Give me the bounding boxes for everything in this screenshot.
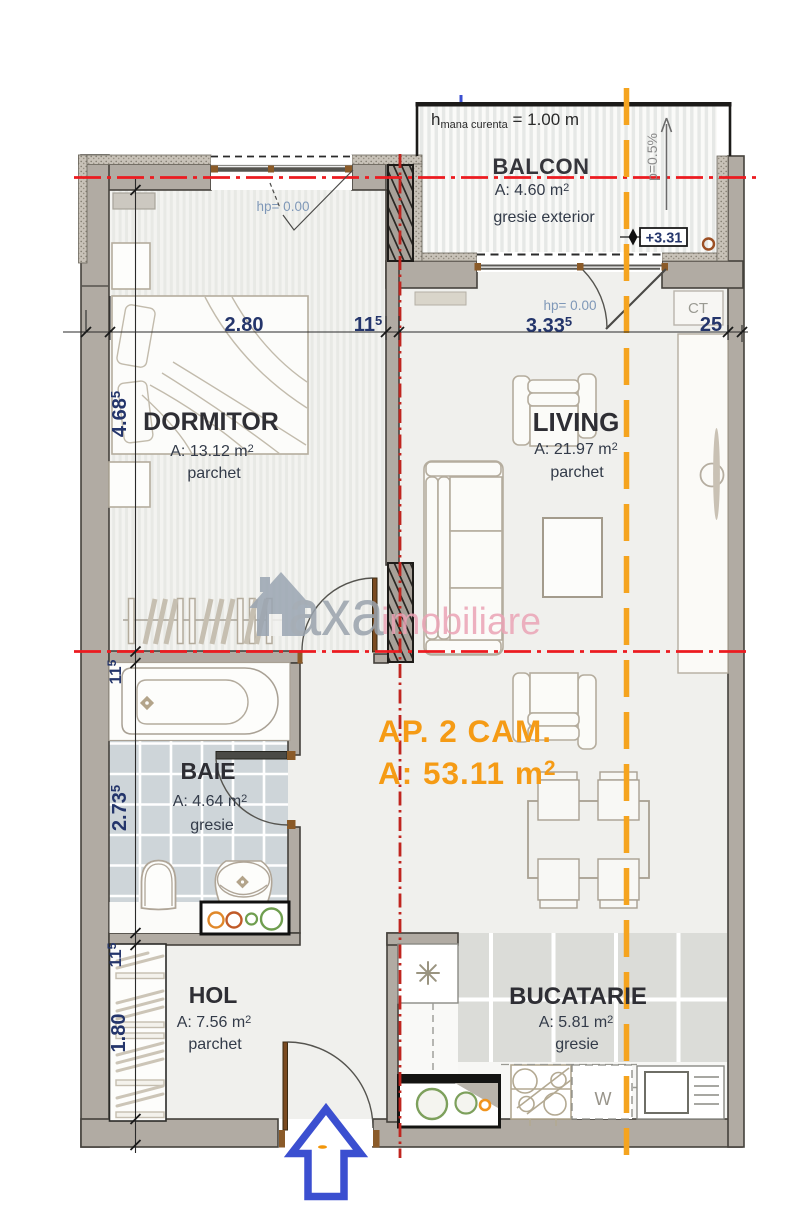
svg-text:imobiliare: imobiliare [381, 601, 541, 643]
svg-text:A: 53.11 m2: A: 53.11 m2 [378, 755, 557, 791]
svg-text:AP. 2 CAM.: AP. 2 CAM. [378, 713, 552, 749]
svg-text:+3.31: +3.31 [646, 231, 683, 247]
svg-text:gresie: gresie [190, 817, 234, 834]
svg-text:gresie: gresie [555, 1036, 599, 1053]
svg-text:BAIE: BAIE [181, 758, 236, 784]
svg-text:HOL: HOL [189, 982, 238, 1008]
svg-text:2.80: 2.80 [225, 314, 264, 336]
svg-text:p=0.5%: p=0.5% [644, 133, 660, 181]
svg-text:BALCON: BALCON [492, 154, 589, 179]
svg-text:W: W [595, 1089, 612, 1109]
svg-text:A: 13.12 m2: A: 13.12 m2 [170, 443, 254, 460]
svg-text:BUCATARIE: BUCATARIE [509, 983, 647, 1010]
svg-text:gresie exterior: gresie exterior [493, 209, 595, 226]
svg-text:A: 4.64 m2: A: 4.64 m2 [173, 793, 248, 810]
svg-text:DORMITOR: DORMITOR [143, 408, 279, 436]
svg-text:LIVING: LIVING [533, 407, 620, 437]
svg-text:CT: CT [688, 300, 708, 317]
svg-text:A: 4.60 m2: A: 4.60 m2 [495, 182, 570, 199]
svg-text:hp= 0.00: hp= 0.00 [544, 298, 597, 313]
svg-text:A: 21.97 m2: A: 21.97 m2 [534, 441, 618, 458]
svg-text:hp= 0.00: hp= 0.00 [257, 199, 310, 214]
svg-text:parchet: parchet [188, 1036, 242, 1053]
svg-text:parchet: parchet [187, 465, 241, 482]
svg-text:A: 7.56 m2: A: 7.56 m2 [177, 1014, 252, 1031]
svg-text:parchet: parchet [550, 464, 604, 481]
svg-text:25: 25 [700, 314, 722, 336]
svg-text:1.80: 1.80 [108, 1014, 130, 1053]
svg-text:axa: axa [288, 576, 385, 649]
svg-text:A: 5.81 m2: A: 5.81 m2 [539, 1014, 614, 1031]
